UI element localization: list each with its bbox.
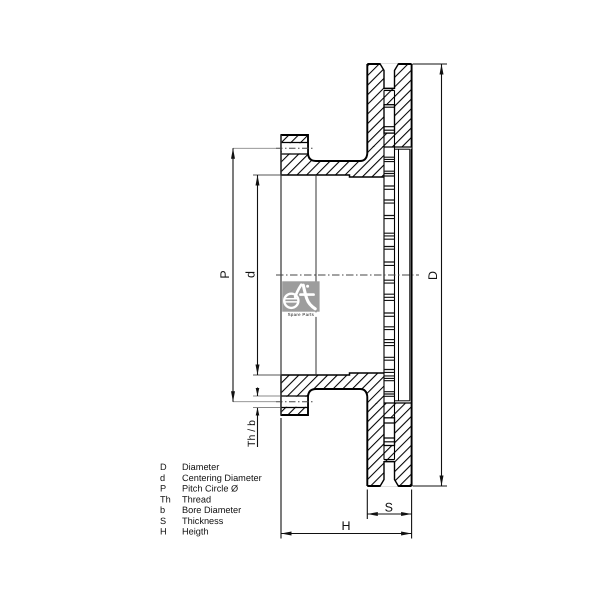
svg-text:S: S [385, 501, 393, 515]
svg-text:Th: Th [160, 494, 171, 504]
svg-text:Bore Diameter: Bore Diameter [182, 505, 241, 515]
svg-text:H: H [160, 527, 167, 537]
svg-text:Pitch Circle Ø: Pitch Circle Ø [182, 484, 238, 494]
svg-text:D: D [160, 462, 167, 472]
svg-text:Thread: Thread [182, 494, 211, 504]
svg-text:Spare Parts: Spare Parts [288, 312, 315, 317]
svg-text:Diameter: Diameter [182, 462, 219, 472]
svg-text:P: P [218, 270, 232, 278]
svg-text:Heigth: Heigth [182, 527, 209, 537]
svg-text:b: b [160, 505, 165, 515]
svg-text:H: H [341, 519, 350, 533]
svg-text:Centering Diameter: Centering Diameter [182, 473, 262, 483]
svg-text:d: d [160, 473, 165, 483]
svg-text:D: D [426, 271, 440, 280]
svg-text:Th / b: Th / b [246, 420, 258, 447]
svg-text:S: S [160, 516, 166, 526]
svg-text:d: d [243, 271, 257, 278]
svg-text:Thickness: Thickness [182, 516, 224, 526]
svg-text:P: P [160, 484, 166, 494]
